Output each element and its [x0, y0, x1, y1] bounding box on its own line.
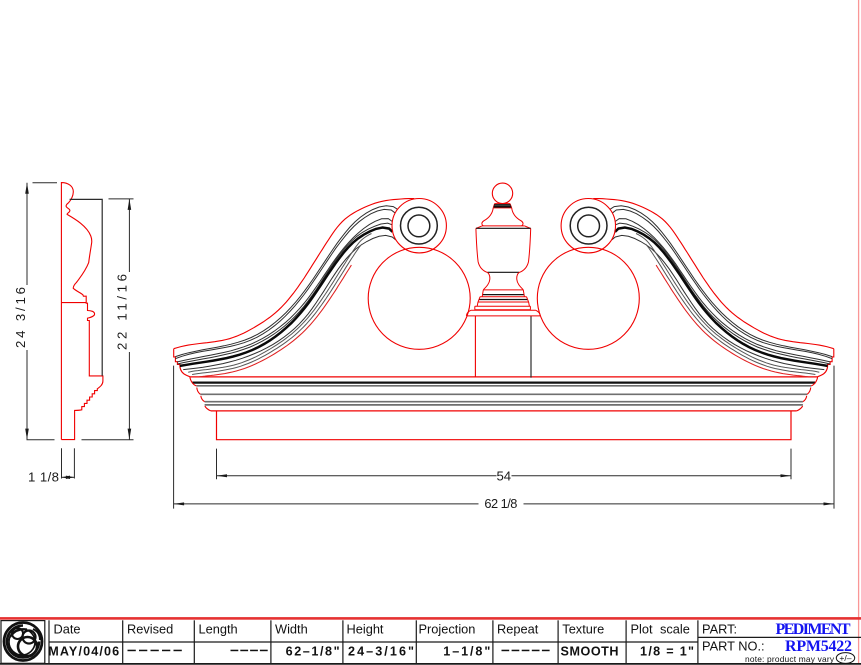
svg-text:SMOOTH: SMOOTH	[561, 645, 619, 659]
svg-text:PART:: PART:	[702, 622, 737, 637]
svg-text:Texture: Texture	[562, 622, 604, 637]
svg-text:PEDIMENT: PEDIMENT	[776, 621, 851, 638]
svg-text:Revised: Revised	[127, 622, 173, 637]
svg-text:+/–: +/–	[839, 653, 851, 663]
svg-text:Projection: Projection	[419, 622, 476, 637]
svg-text:1 1/8: 1 1/8	[28, 469, 59, 484]
svg-text:24–3/16": 24–3/16"	[348, 645, 414, 659]
svg-text:scale: scale	[660, 622, 690, 637]
svg-text:62–1/8": 62–1/8"	[286, 645, 340, 659]
svg-text:Length: Length	[199, 622, 238, 637]
svg-text:Repeat: Repeat	[497, 622, 539, 637]
svg-text:Date: Date	[54, 622, 81, 637]
svg-text:PART NO.:: PART NO.:	[702, 639, 765, 654]
svg-text:Height: Height	[347, 622, 384, 637]
svg-text:MAY/04/06: MAY/04/06	[48, 645, 119, 659]
svg-text:1/8 = 1": 1/8 = 1"	[640, 645, 694, 659]
svg-text:62 1/8: 62 1/8	[484, 496, 517, 511]
svg-text:54: 54	[496, 468, 511, 483]
svg-text:note: product may vary: note: product may vary	[745, 654, 835, 664]
svg-text:Width: Width	[275, 622, 308, 637]
svg-text:Plot: Plot	[631, 622, 653, 637]
